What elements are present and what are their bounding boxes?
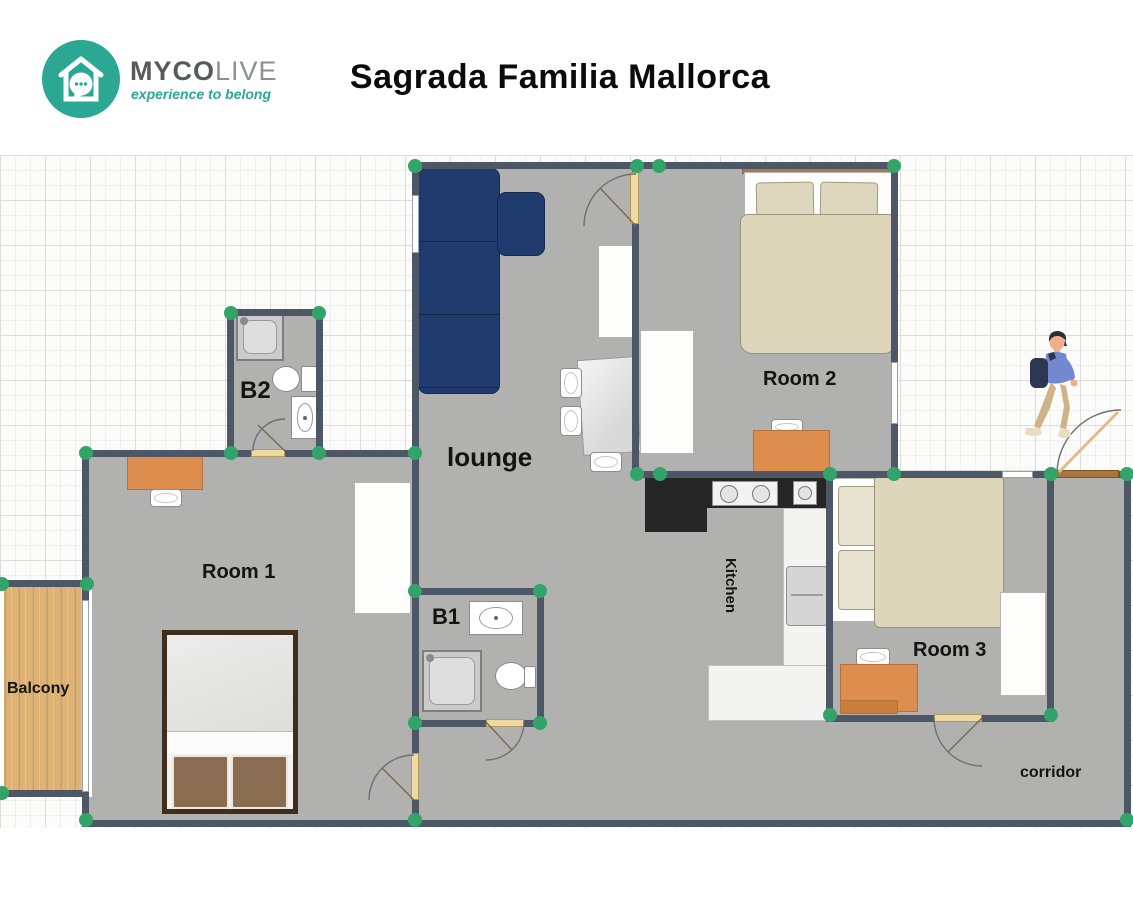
- room3-door: [934, 714, 982, 722]
- walking-person-icon: [1018, 328, 1094, 454]
- brand-word-secondary: LIVE: [215, 56, 278, 86]
- room1-sheet-fold: [167, 731, 293, 754]
- room3-desk-shelf: [840, 700, 898, 714]
- room2-label: Room 2: [763, 368, 836, 391]
- b2-bottom-wall-right: [285, 450, 323, 457]
- room3-duvet: [874, 474, 1004, 628]
- brand-word-primary: MYCO: [130, 56, 215, 86]
- corridor-label: corridor: [1020, 764, 1081, 782]
- room2-window: [891, 362, 898, 424]
- room3-pillow: [838, 486, 878, 546]
- dining-chair: [560, 406, 582, 436]
- room3-right-wall: [1047, 471, 1054, 722]
- balcony-door-window: [82, 600, 89, 792]
- b1-top-wall: [412, 588, 544, 595]
- room2-right-wall: [891, 162, 898, 478]
- room2-pillow: [756, 181, 815, 218]
- balcony-bottom-wall: [0, 790, 88, 797]
- burner-icon: [752, 485, 770, 503]
- b2-sink: [291, 396, 319, 439]
- b1-right-wall: [537, 588, 544, 727]
- b1-bottom-wall-right: [524, 720, 544, 727]
- room2-pillow: [820, 181, 879, 218]
- page-title: Sagrada Familia Mallorca: [280, 58, 840, 97]
- entry-wall-a: [895, 471, 1002, 478]
- brand-tagline: experience to belong: [131, 86, 271, 102]
- lounge-sideboard: [598, 245, 634, 338]
- sink-basin-icon: [798, 486, 812, 500]
- room2-wardrobe: [640, 330, 694, 454]
- balcony-top-wall: [0, 580, 88, 587]
- floorplan-page: MYCOLIVE experience to belong Sagrada Fa…: [0, 0, 1133, 917]
- room3-left-wall: [826, 471, 833, 722]
- room1-door: [411, 753, 419, 800]
- room3-bottom-wall-right: [982, 715, 1054, 722]
- dining-chair: [560, 368, 582, 398]
- room1-bed: [162, 630, 298, 814]
- lounge-sofa-chaise: [497, 192, 545, 256]
- room1-desk-chair: [150, 489, 182, 507]
- room2-duvet: [740, 214, 896, 354]
- room3-window: [1002, 471, 1033, 478]
- room1-label: Room 1: [202, 561, 275, 584]
- kitchen-cooktop: [712, 481, 778, 506]
- kitchen-sink: [793, 481, 817, 505]
- brand-wordmark: MYCOLIVE: [130, 56, 278, 87]
- lounge-lower-floor: [412, 457, 632, 827]
- balcony-label: Balcony: [7, 680, 69, 698]
- b2-bottom-wall-left: [227, 450, 251, 457]
- room2-door: [630, 172, 639, 224]
- room1-desk: [127, 452, 203, 490]
- entry-wall-b: [1033, 471, 1059, 478]
- lounge-label: lounge: [447, 442, 532, 473]
- b2-top-wall: [227, 309, 323, 316]
- b1-label: B1: [432, 604, 460, 630]
- kitchen-label: Kitchen: [722, 558, 739, 613]
- room1-pillow: [172, 755, 229, 809]
- b1-door: [486, 719, 524, 727]
- room1-top-wall-right: [316, 450, 419, 457]
- outer-top-wall: [412, 162, 898, 169]
- room3-pillow: [838, 550, 878, 610]
- lounge-room2-divider-wall: [632, 224, 639, 478]
- b2-toilet-tank: [301, 366, 317, 392]
- kitchen-counter-corner: [645, 478, 707, 532]
- room3-label: Room 3: [913, 639, 986, 662]
- b1-toilet-bowl: [495, 662, 527, 690]
- b2-label: B2: [240, 377, 271, 405]
- room1-wardrobe: [354, 482, 411, 614]
- kitchen-island: [708, 665, 830, 721]
- burner-icon: [720, 485, 738, 503]
- b1-toilet-tank: [524, 666, 536, 688]
- b1-shower: [422, 650, 482, 712]
- outer-bottom-wall: [82, 820, 1131, 827]
- b2-left-wall: [227, 309, 234, 457]
- kitchen-fridge: [786, 566, 828, 626]
- b1-sink: [469, 601, 523, 635]
- entry-wall-c: [1119, 471, 1131, 478]
- b2-shower: [236, 313, 284, 361]
- b2-door: [251, 449, 285, 457]
- lounge-window: [412, 195, 419, 253]
- dining-chair: [590, 452, 622, 472]
- b1-bottom-wall-left: [412, 720, 486, 727]
- room2-bottom-wall: [632, 471, 898, 478]
- room1-pillow: [231, 755, 288, 809]
- room1-top-wall-left: [82, 450, 234, 457]
- room3-bottom-wall-left: [826, 715, 934, 722]
- room1-duvet: [167, 635, 293, 731]
- lounge-corner-sofa: [418, 168, 500, 394]
- b2-toilet-bowl: [272, 366, 300, 392]
- entry-door: [1057, 470, 1119, 478]
- room2-desk: [753, 430, 830, 475]
- mycolive-logo-icon: [42, 40, 120, 118]
- outer-right-wall: [1124, 471, 1131, 827]
- room3-wardrobe: [1000, 592, 1046, 696]
- b2-right-wall: [316, 309, 323, 457]
